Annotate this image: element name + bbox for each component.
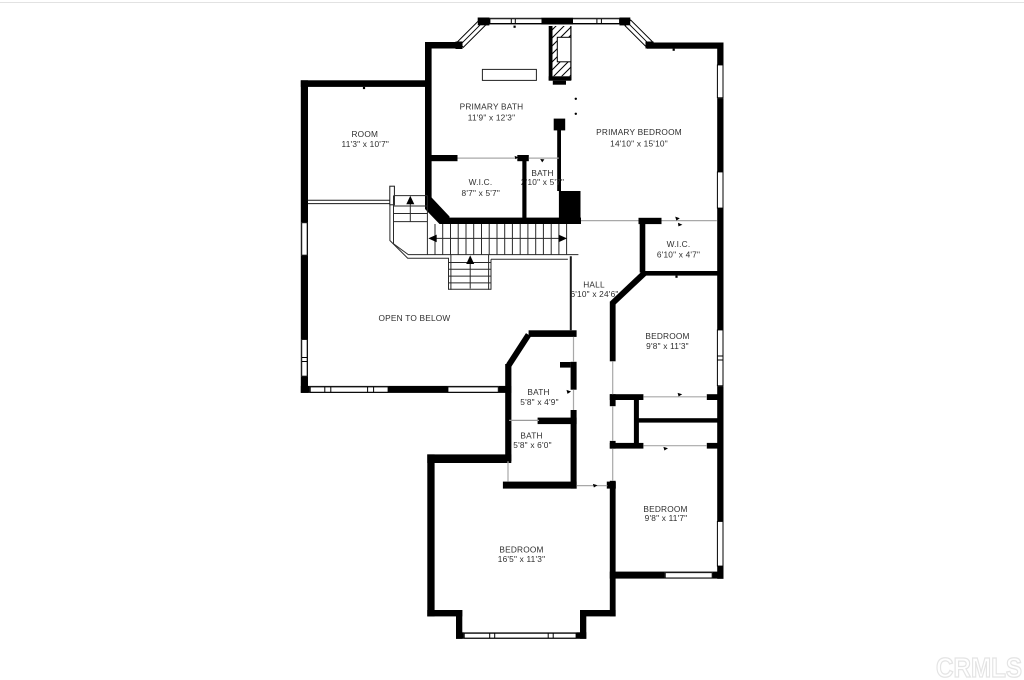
svg-text:BATH: BATH [527, 387, 549, 397]
svg-text:8'7" x 5'7": 8'7" x 5'7" [462, 188, 500, 198]
svg-text:11'3" x 10'7": 11'3" x 10'7" [342, 139, 390, 149]
svg-text:CRMLS: CRMLS [936, 652, 1022, 680]
svg-text:BATH: BATH [520, 430, 542, 440]
svg-text:5'8" x 6'0": 5'8" x 6'0" [513, 440, 551, 450]
svg-text:W.I.C.: W.I.C. [469, 177, 493, 187]
svg-text:5'8" x 4'9": 5'8" x 4'9" [520, 397, 558, 407]
svg-text:W.I.C.: W.I.C. [667, 239, 691, 249]
svg-text:11'9" x 12'3": 11'9" x 12'3" [468, 112, 516, 122]
svg-text:PRIMARY BEDROOM: PRIMARY BEDROOM [596, 127, 682, 137]
svg-text:16'5" x 11'3": 16'5" x 11'3" [498, 554, 546, 564]
svg-text:9'8" x 11'3": 9'8" x 11'3" [646, 341, 689, 351]
svg-text:14'10" x 15'10": 14'10" x 15'10" [610, 138, 668, 148]
svg-text:BEDROOM: BEDROOM [499, 544, 543, 554]
svg-text:2'10" x 5'7": 2'10" x 5'7" [521, 177, 564, 187]
svg-text:6'10" x 24'6": 6'10" x 24'6" [570, 289, 618, 299]
svg-text:PRIMARY BATH: PRIMARY BATH [460, 101, 524, 111]
svg-text:ROOM: ROOM [351, 129, 378, 139]
svg-text:9'8" x 11'7": 9'8" x 11'7" [645, 513, 688, 523]
svg-text:BEDROOM: BEDROOM [645, 331, 689, 341]
svg-text:OPEN TO BELOW: OPEN TO BELOW [379, 313, 451, 323]
svg-text:6'10" x 4'7": 6'10" x 4'7" [657, 250, 700, 260]
